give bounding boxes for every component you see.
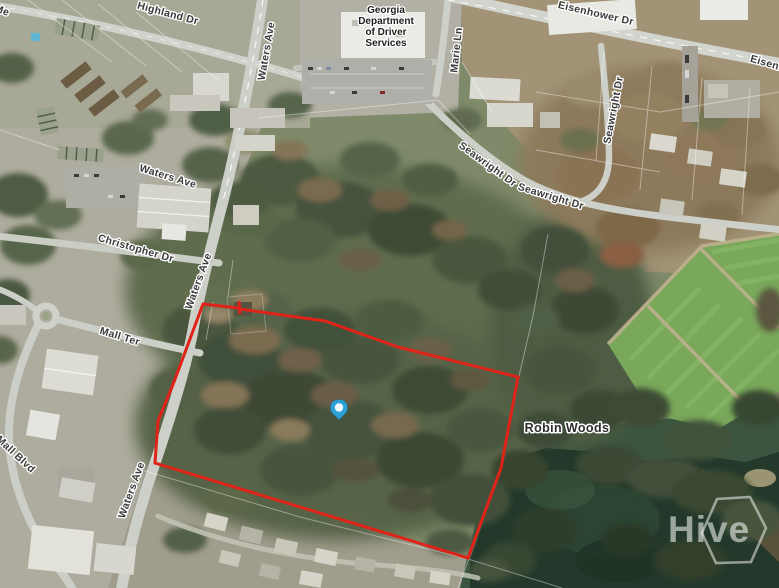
watermark-text: Hive xyxy=(668,509,750,550)
poi-label-line1: Georgia xyxy=(367,5,405,16)
poi-label-line4: Services xyxy=(365,38,407,49)
property-boundary-tick xyxy=(239,301,240,314)
pool xyxy=(31,33,40,41)
poi-label-line3: of Driver xyxy=(365,27,406,38)
map-canvas[interactable]: Me Highland Dr Waters Ave Marie Ln Eisen… xyxy=(0,0,779,588)
poi-label-line2: Department xyxy=(358,16,414,27)
satellite-map[interactable]: Me Highland Dr Waters Ave Marie Ln Eisen… xyxy=(0,0,779,588)
neighborhood-label-robin-woods: Robin Woods xyxy=(525,421,610,435)
